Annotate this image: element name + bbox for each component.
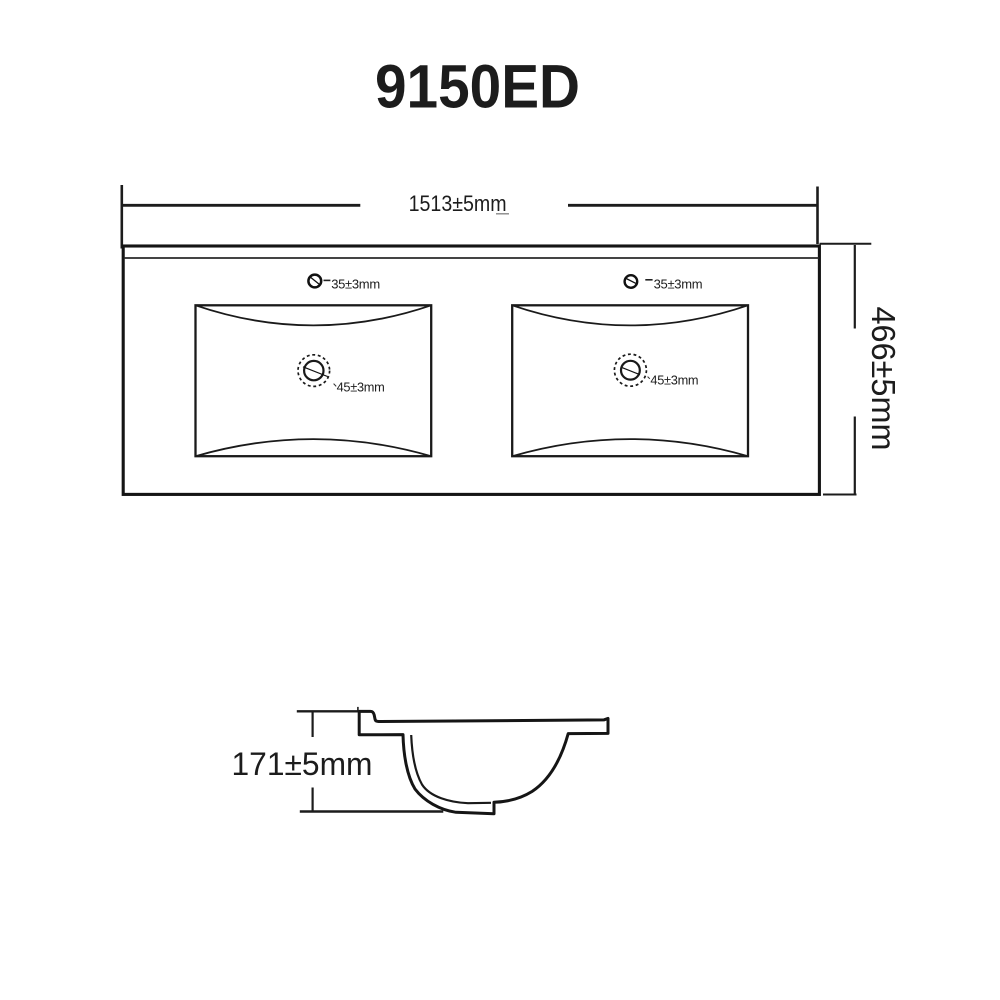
svg-text:45±3mm: 45±3mm xyxy=(650,372,698,387)
svg-text:9150ED: 9150ED xyxy=(375,53,580,122)
svg-text:1513±5mm: 1513±5mm xyxy=(409,191,507,216)
svg-text:35±3mm: 35±3mm xyxy=(331,276,380,291)
svg-text:35±3mm: 35±3mm xyxy=(654,277,703,292)
svg-text:466±5mm: 466±5mm xyxy=(865,307,902,451)
svg-text:45±3mm: 45±3mm xyxy=(337,379,385,394)
svg-text:171±5mm: 171±5mm xyxy=(232,746,373,782)
